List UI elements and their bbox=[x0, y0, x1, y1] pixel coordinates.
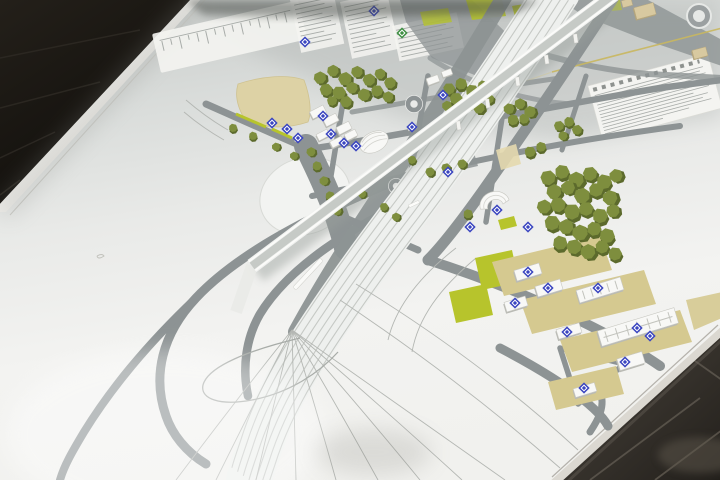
bottom-smudge-shadow bbox=[316, 428, 432, 476]
scale-model-photo bbox=[0, 0, 720, 480]
model-photo-stage bbox=[0, 0, 720, 480]
